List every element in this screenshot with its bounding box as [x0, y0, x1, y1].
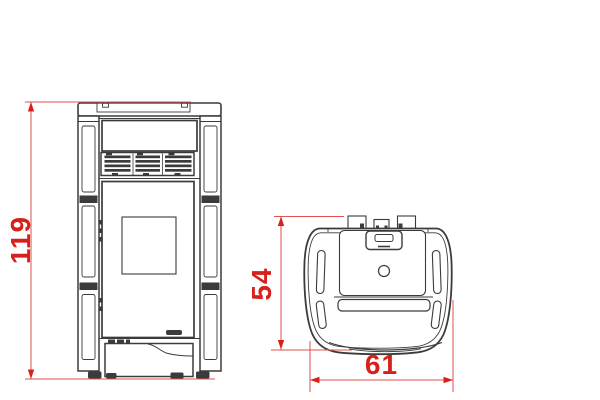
dimension-drawing: 119 54 61: [0, 0, 600, 400]
arrow-up-icon: [28, 102, 34, 112]
arrow-down-icon: [278, 340, 284, 350]
drawing-canvas: [0, 0, 600, 400]
front-upper-panel: [102, 121, 197, 152]
front-ash-drawer: [105, 344, 193, 377]
top-front-band: [338, 300, 430, 312]
stove-front-view: [78, 103, 221, 379]
arrow-left-icon: [310, 377, 320, 383]
depth-dimension-label: 54: [247, 249, 277, 319]
width-dimension-label: 61: [347, 350, 417, 380]
top-center-knob: [379, 266, 390, 277]
front-door-glass: [122, 217, 176, 274]
arrow-right-icon: [444, 377, 454, 383]
arrow-up-icon: [278, 217, 284, 227]
height-dimension-label: 119: [6, 205, 36, 275]
stove-top-view: [304, 216, 451, 354]
arrow-down-icon: [28, 370, 34, 380]
front-top-lid: [97, 103, 190, 112]
door-latch: [166, 330, 182, 335]
